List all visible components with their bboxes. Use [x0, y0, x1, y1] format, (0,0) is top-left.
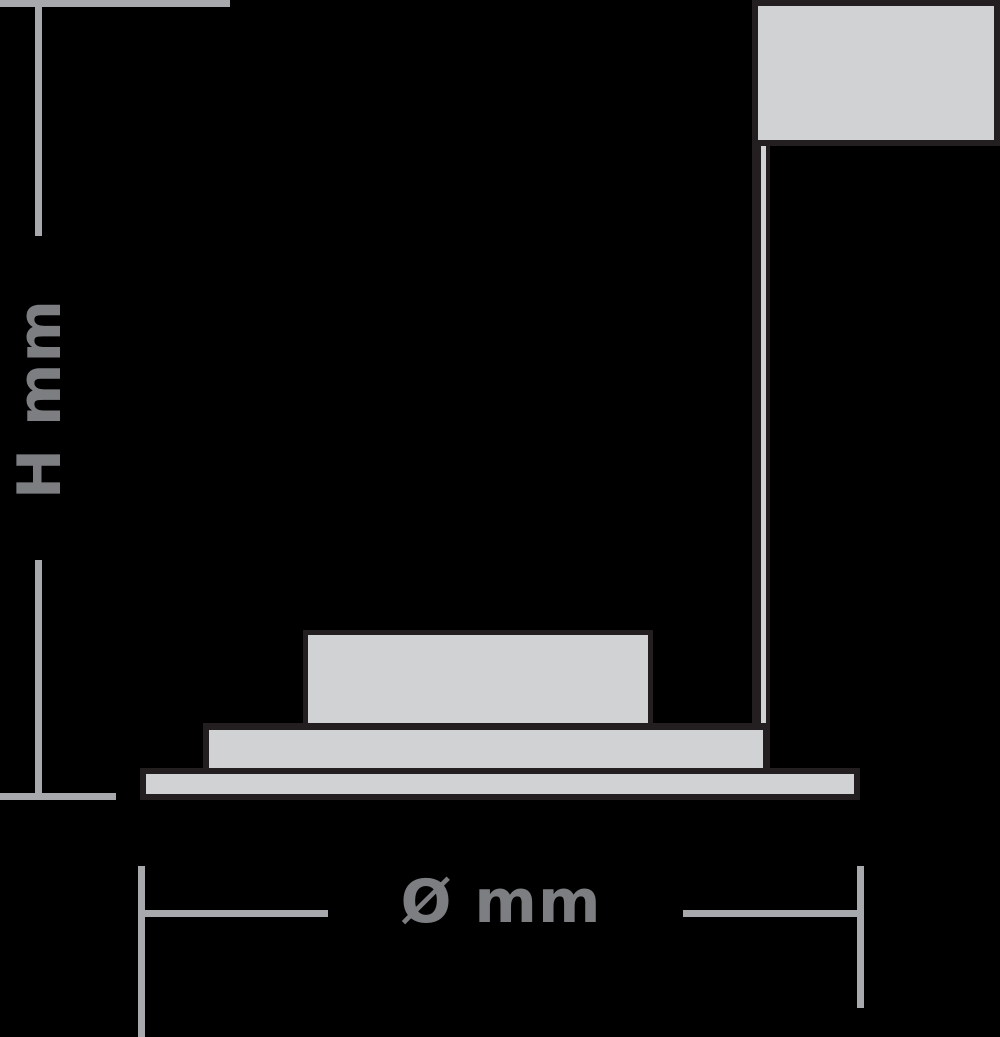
diameter-dim-right-tick: [857, 866, 864, 1008]
diameter-dim-line-right-segment: [683, 910, 861, 917]
dimension-diagram: H mm Ø mm: [0, 0, 1000, 1037]
height-dim-line-upper-segment: [35, 6, 42, 236]
stem-core-line: [761, 146, 766, 724]
diameter-dim-line-left-segment: [141, 910, 328, 917]
diameter-dimension-label: Ø mm: [401, 872, 602, 932]
height-dim-bottom-cap-line: [0, 793, 116, 800]
height-dim-line-lower-segment: [35, 560, 42, 798]
fixture-trim-flange: [140, 768, 860, 800]
height-dimension-label: H mm: [10, 299, 70, 499]
fixture-housing-top-tier: [303, 630, 653, 723]
diameter-dim-left-tick: [138, 866, 145, 1037]
suspension-stem: [752, 146, 770, 724]
fixture-housing-middle-tier: [203, 723, 770, 770]
driver-junction-box: [752, 0, 1000, 146]
